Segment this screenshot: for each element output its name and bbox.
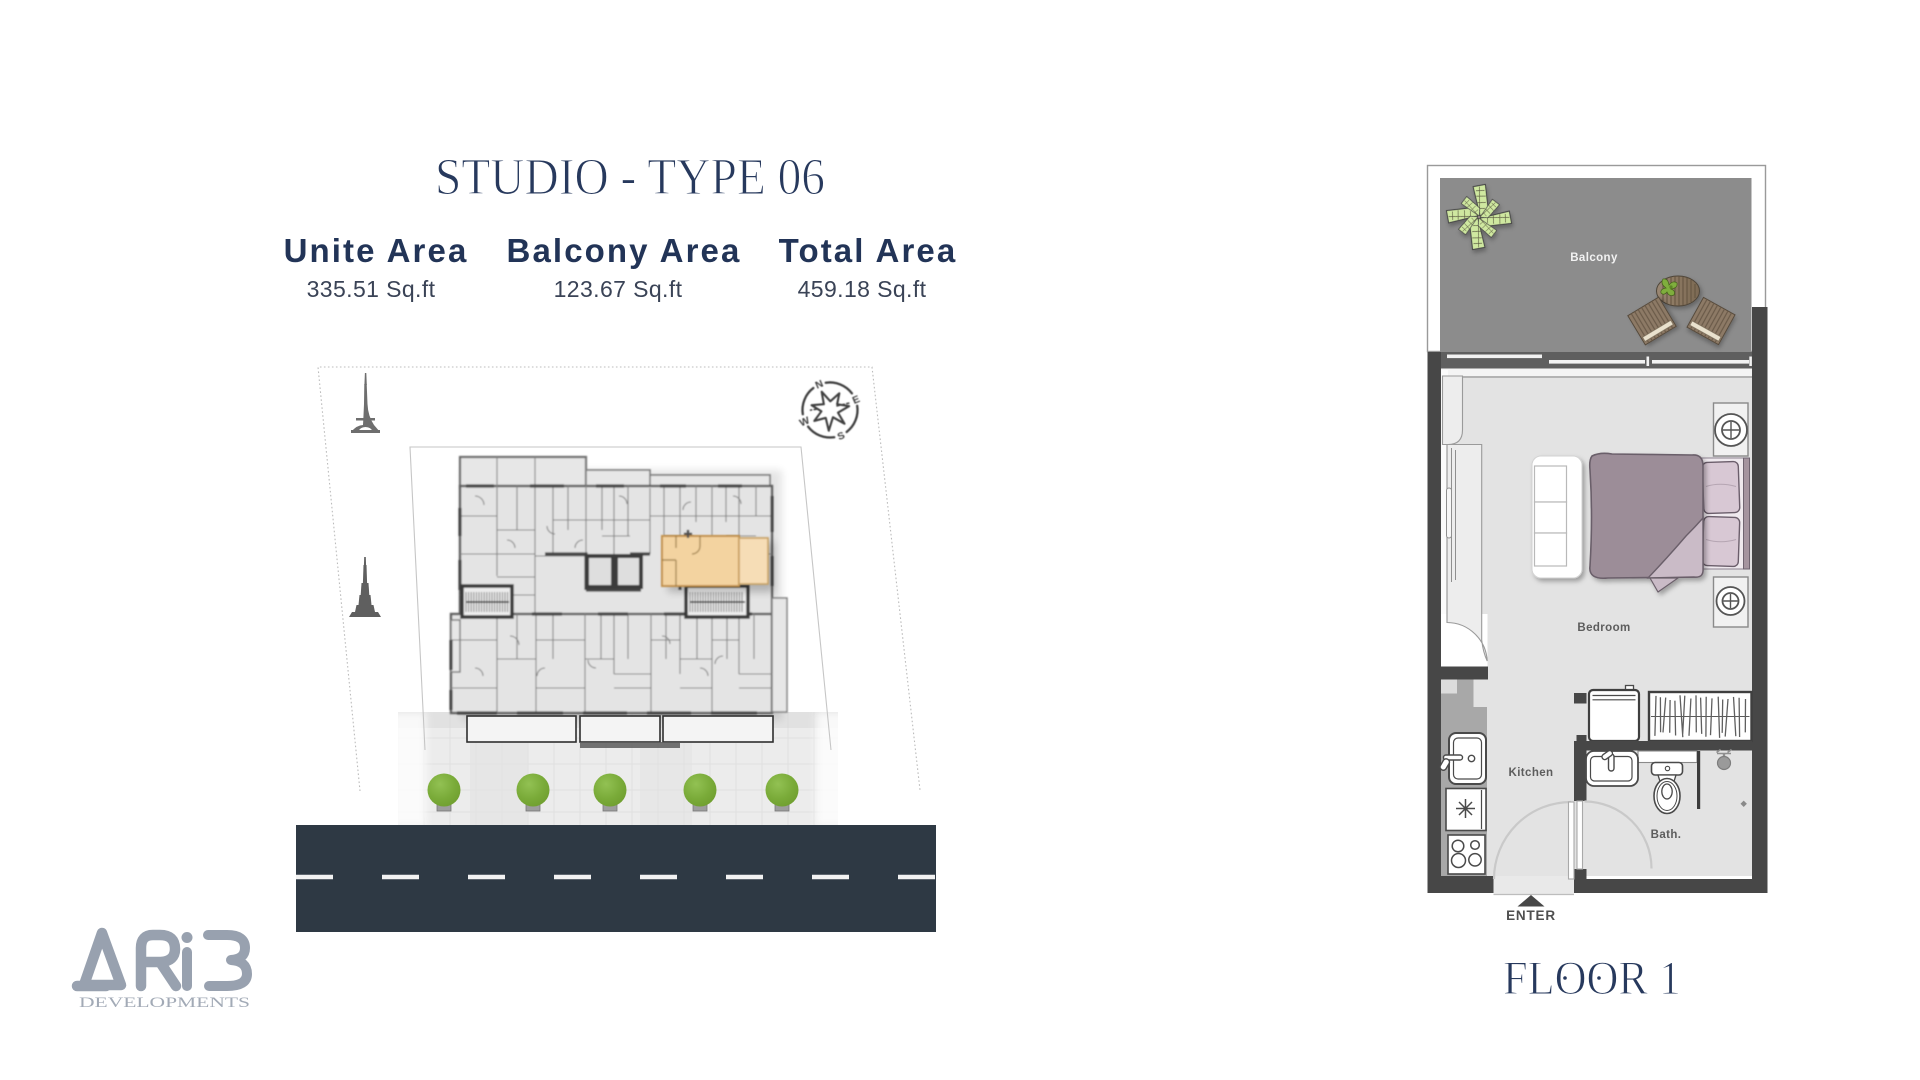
svg-text:ENTER: ENTER bbox=[1506, 908, 1556, 923]
svg-text:DEVELOPMENTS: DEVELOPMENTS bbox=[79, 995, 250, 1011]
svg-text:FLOOR 1: FLOOR 1 bbox=[1503, 952, 1681, 1005]
svg-text:Bath.: Bath. bbox=[1651, 829, 1682, 841]
svg-text:STUDIO - TYPE 06: STUDIO - TYPE 06 bbox=[435, 149, 825, 206]
svg-text:N: N bbox=[813, 378, 825, 392]
svg-text:Kitchen: Kitchen bbox=[1509, 767, 1554, 779]
svg-text:S: S bbox=[836, 429, 847, 443]
svg-text:Bedroom: Bedroom bbox=[1577, 622, 1630, 634]
svg-text:E: E bbox=[851, 393, 862, 407]
svg-text:Balcony: Balcony bbox=[1570, 252, 1618, 264]
